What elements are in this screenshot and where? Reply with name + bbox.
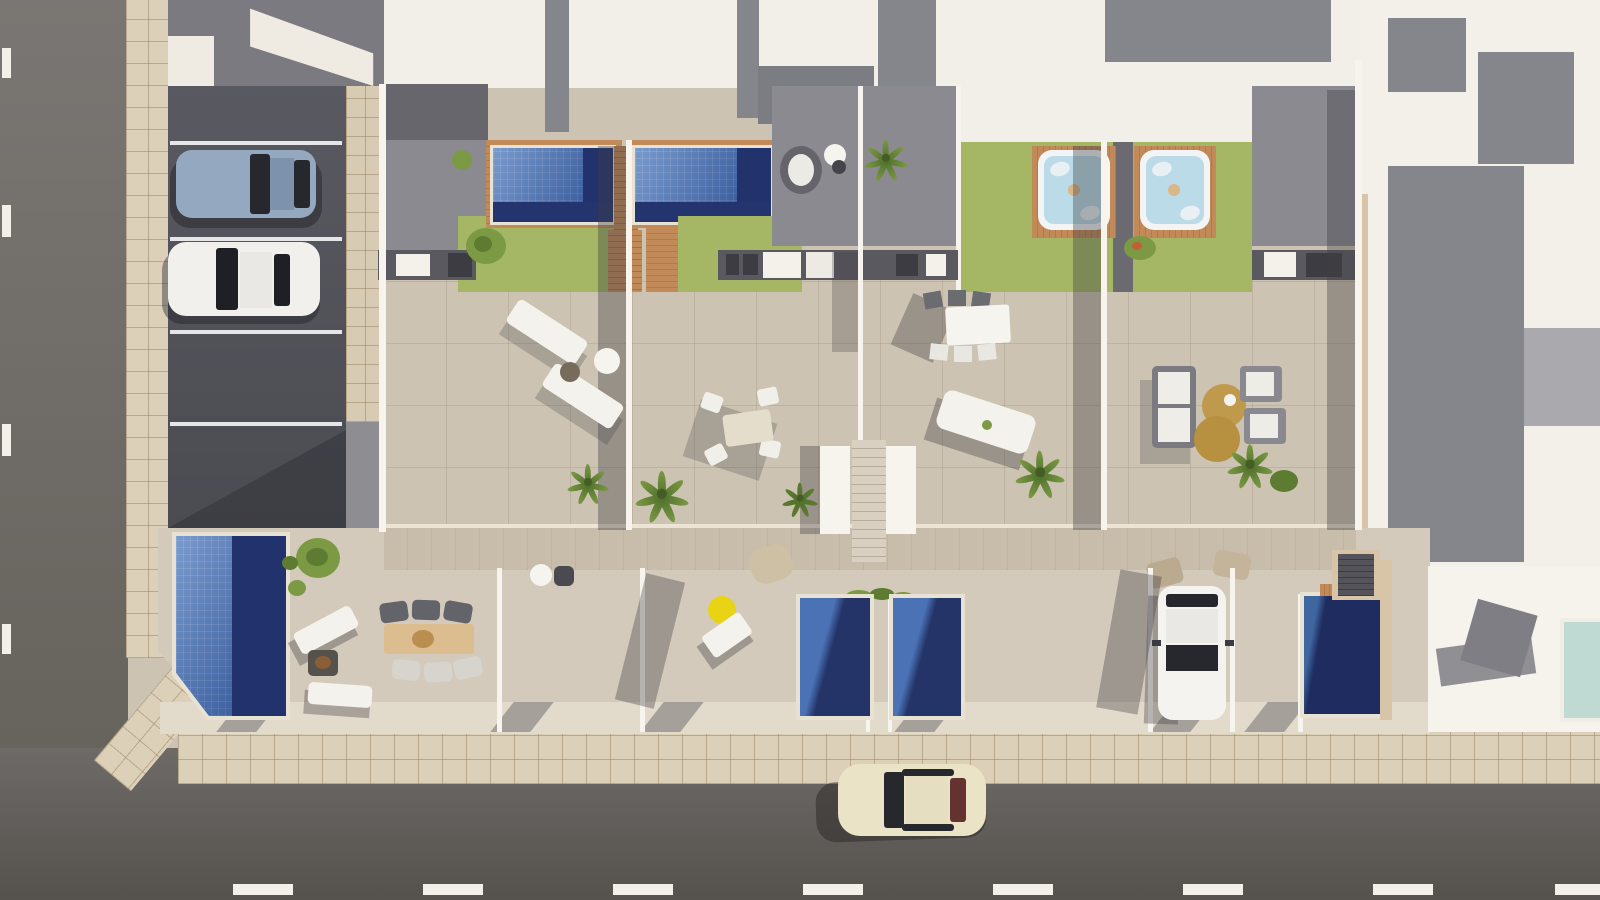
driveway-car-rear-glass	[1166, 594, 1218, 607]
dining-chair	[923, 291, 944, 310]
bbq-counter	[1264, 252, 1296, 277]
lane-dash-left	[2, 205, 11, 237]
bbq-grill	[743, 254, 758, 275]
armchair-cushion	[1246, 372, 1274, 396]
bbq-counter	[806, 252, 834, 278]
palm-center	[584, 478, 592, 486]
side-table	[594, 348, 620, 374]
bbq-grill	[726, 254, 739, 275]
dining-chair	[423, 661, 452, 683]
street-car-window	[902, 824, 954, 831]
center-patio-wall	[858, 86, 863, 246]
fire-pit-bowl	[315, 656, 331, 669]
palm-plant	[1016, 448, 1064, 496]
parking-header-wedge2	[168, 36, 214, 86]
neighbor-roof-a	[1388, 18, 1466, 92]
roof-gray-strip	[878, 0, 936, 88]
parking-line	[170, 422, 342, 426]
driveway-car-roof	[1166, 609, 1218, 643]
neighbor-pool	[1564, 622, 1600, 718]
palm-plant	[636, 468, 688, 520]
dining-chair	[929, 343, 949, 361]
blue-car-rear-glass	[294, 160, 310, 208]
street-car-rear-glass	[950, 778, 966, 822]
ground-pool-shadow	[232, 536, 286, 716]
roof-gray-strip	[737, 0, 759, 118]
driveway-car-mirror	[1152, 640, 1161, 646]
driveway-car-windshield	[1166, 645, 1218, 671]
dining-table	[945, 304, 1011, 345]
pouf	[560, 362, 580, 382]
neighbor-roof-b	[1478, 52, 1574, 164]
lane-dash-left	[2, 624, 11, 654]
party-wall	[1355, 60, 1362, 530]
pool-frame-right	[1380, 560, 1392, 720]
blue-car-roof	[270, 158, 294, 210]
dining-chair	[948, 290, 966, 306]
plunge-pool	[800, 598, 870, 716]
dining-chair	[391, 659, 421, 682]
wall-shadow	[1073, 146, 1101, 530]
lane-dash-left	[2, 48, 11, 78]
aerial-render-townhouse-complex	[0, 0, 1600, 900]
stair-pillar	[820, 446, 850, 534]
dining-chair	[379, 600, 410, 624]
bbq-grill	[448, 253, 472, 277]
lower-wall	[1230, 568, 1235, 732]
unit1-plant-pot	[452, 150, 472, 170]
parking-line	[170, 330, 342, 334]
lane-dash-bottom	[233, 884, 293, 895]
dining-chair	[954, 346, 972, 362]
unit1-roofbox	[384, 84, 488, 140]
palm-center	[1246, 460, 1255, 469]
tree-core	[474, 236, 492, 252]
blue-car-windshield	[250, 154, 270, 214]
stair-box	[1338, 554, 1374, 596]
wall-shadow	[832, 252, 858, 352]
bbq-counter	[763, 252, 801, 278]
lane-dash-bottom	[993, 884, 1053, 895]
lower-wall	[497, 568, 502, 732]
wall-shadow	[1327, 90, 1355, 530]
daybed-plant	[982, 420, 992, 430]
stair-pillar	[886, 446, 916, 534]
egg-chair-cushion	[788, 154, 814, 186]
white-car-rear-glass	[274, 254, 290, 306]
roof-gray-patch	[1105, 0, 1331, 62]
patio-planter	[832, 160, 846, 174]
party-wall	[1101, 140, 1107, 530]
sun-lounger	[307, 682, 372, 708]
lawn-divider-wall	[1113, 142, 1133, 292]
street-car-roof	[906, 776, 948, 824]
driveway-car-mirror	[1225, 640, 1234, 646]
lane-dash-bottom	[1183, 884, 1243, 895]
parking-line	[170, 237, 342, 241]
white-car-windshield	[216, 248, 238, 310]
party-wall	[858, 246, 863, 446]
parking-line	[170, 141, 342, 145]
tree-core	[306, 548, 328, 566]
lane-dash-bottom	[1555, 884, 1600, 895]
neighbor-roof-mass	[1388, 166, 1524, 562]
plunge-pool	[1304, 596, 1380, 714]
walkway-table	[530, 564, 552, 586]
bush	[282, 556, 298, 570]
party-wall	[626, 140, 632, 530]
armchair-cushion	[1250, 414, 1278, 438]
walkway-stool	[554, 566, 574, 586]
palm-plant	[1228, 442, 1272, 486]
ottoman-tray	[1224, 394, 1236, 406]
bbq-counter	[396, 254, 430, 276]
unit2-pool-shadow-right	[737, 148, 771, 208]
bbq-counter	[926, 254, 946, 276]
roof-gray-strip	[545, 0, 569, 132]
palm-plant	[865, 137, 907, 179]
palm-center	[1035, 467, 1045, 477]
palm-plant	[783, 481, 817, 515]
white-car-roof	[240, 252, 272, 308]
building-left-wall	[379, 84, 386, 532]
plunge-pool	[893, 598, 961, 716]
sofa-cushion	[1158, 408, 1190, 442]
street-car-windshield	[884, 772, 904, 828]
unit1-pool-shadow-bottom	[493, 202, 613, 222]
palm-plant	[568, 462, 608, 502]
lane-dash-bottom	[1373, 884, 1433, 895]
bush	[288, 580, 306, 596]
lane-dash-bottom	[613, 884, 673, 895]
lane-dash-bottom	[803, 884, 863, 895]
rose-bush-flower	[1132, 242, 1142, 250]
palm-center	[797, 495, 804, 502]
sofa-cushion	[1158, 372, 1190, 404]
lane-dash-left	[2, 424, 11, 456]
lane-dash-bottom	[423, 884, 483, 895]
street-car-window	[902, 769, 954, 776]
bush	[1270, 470, 1298, 492]
dining-chair	[977, 343, 997, 361]
table-centerpiece	[412, 630, 434, 648]
dining-table	[722, 409, 774, 447]
hot-tub-core	[1168, 184, 1180, 196]
neighbor-roof-shadow	[1524, 328, 1600, 426]
central-stairs	[852, 440, 886, 562]
dining-chair	[412, 600, 441, 621]
bbq-grill	[896, 254, 918, 276]
